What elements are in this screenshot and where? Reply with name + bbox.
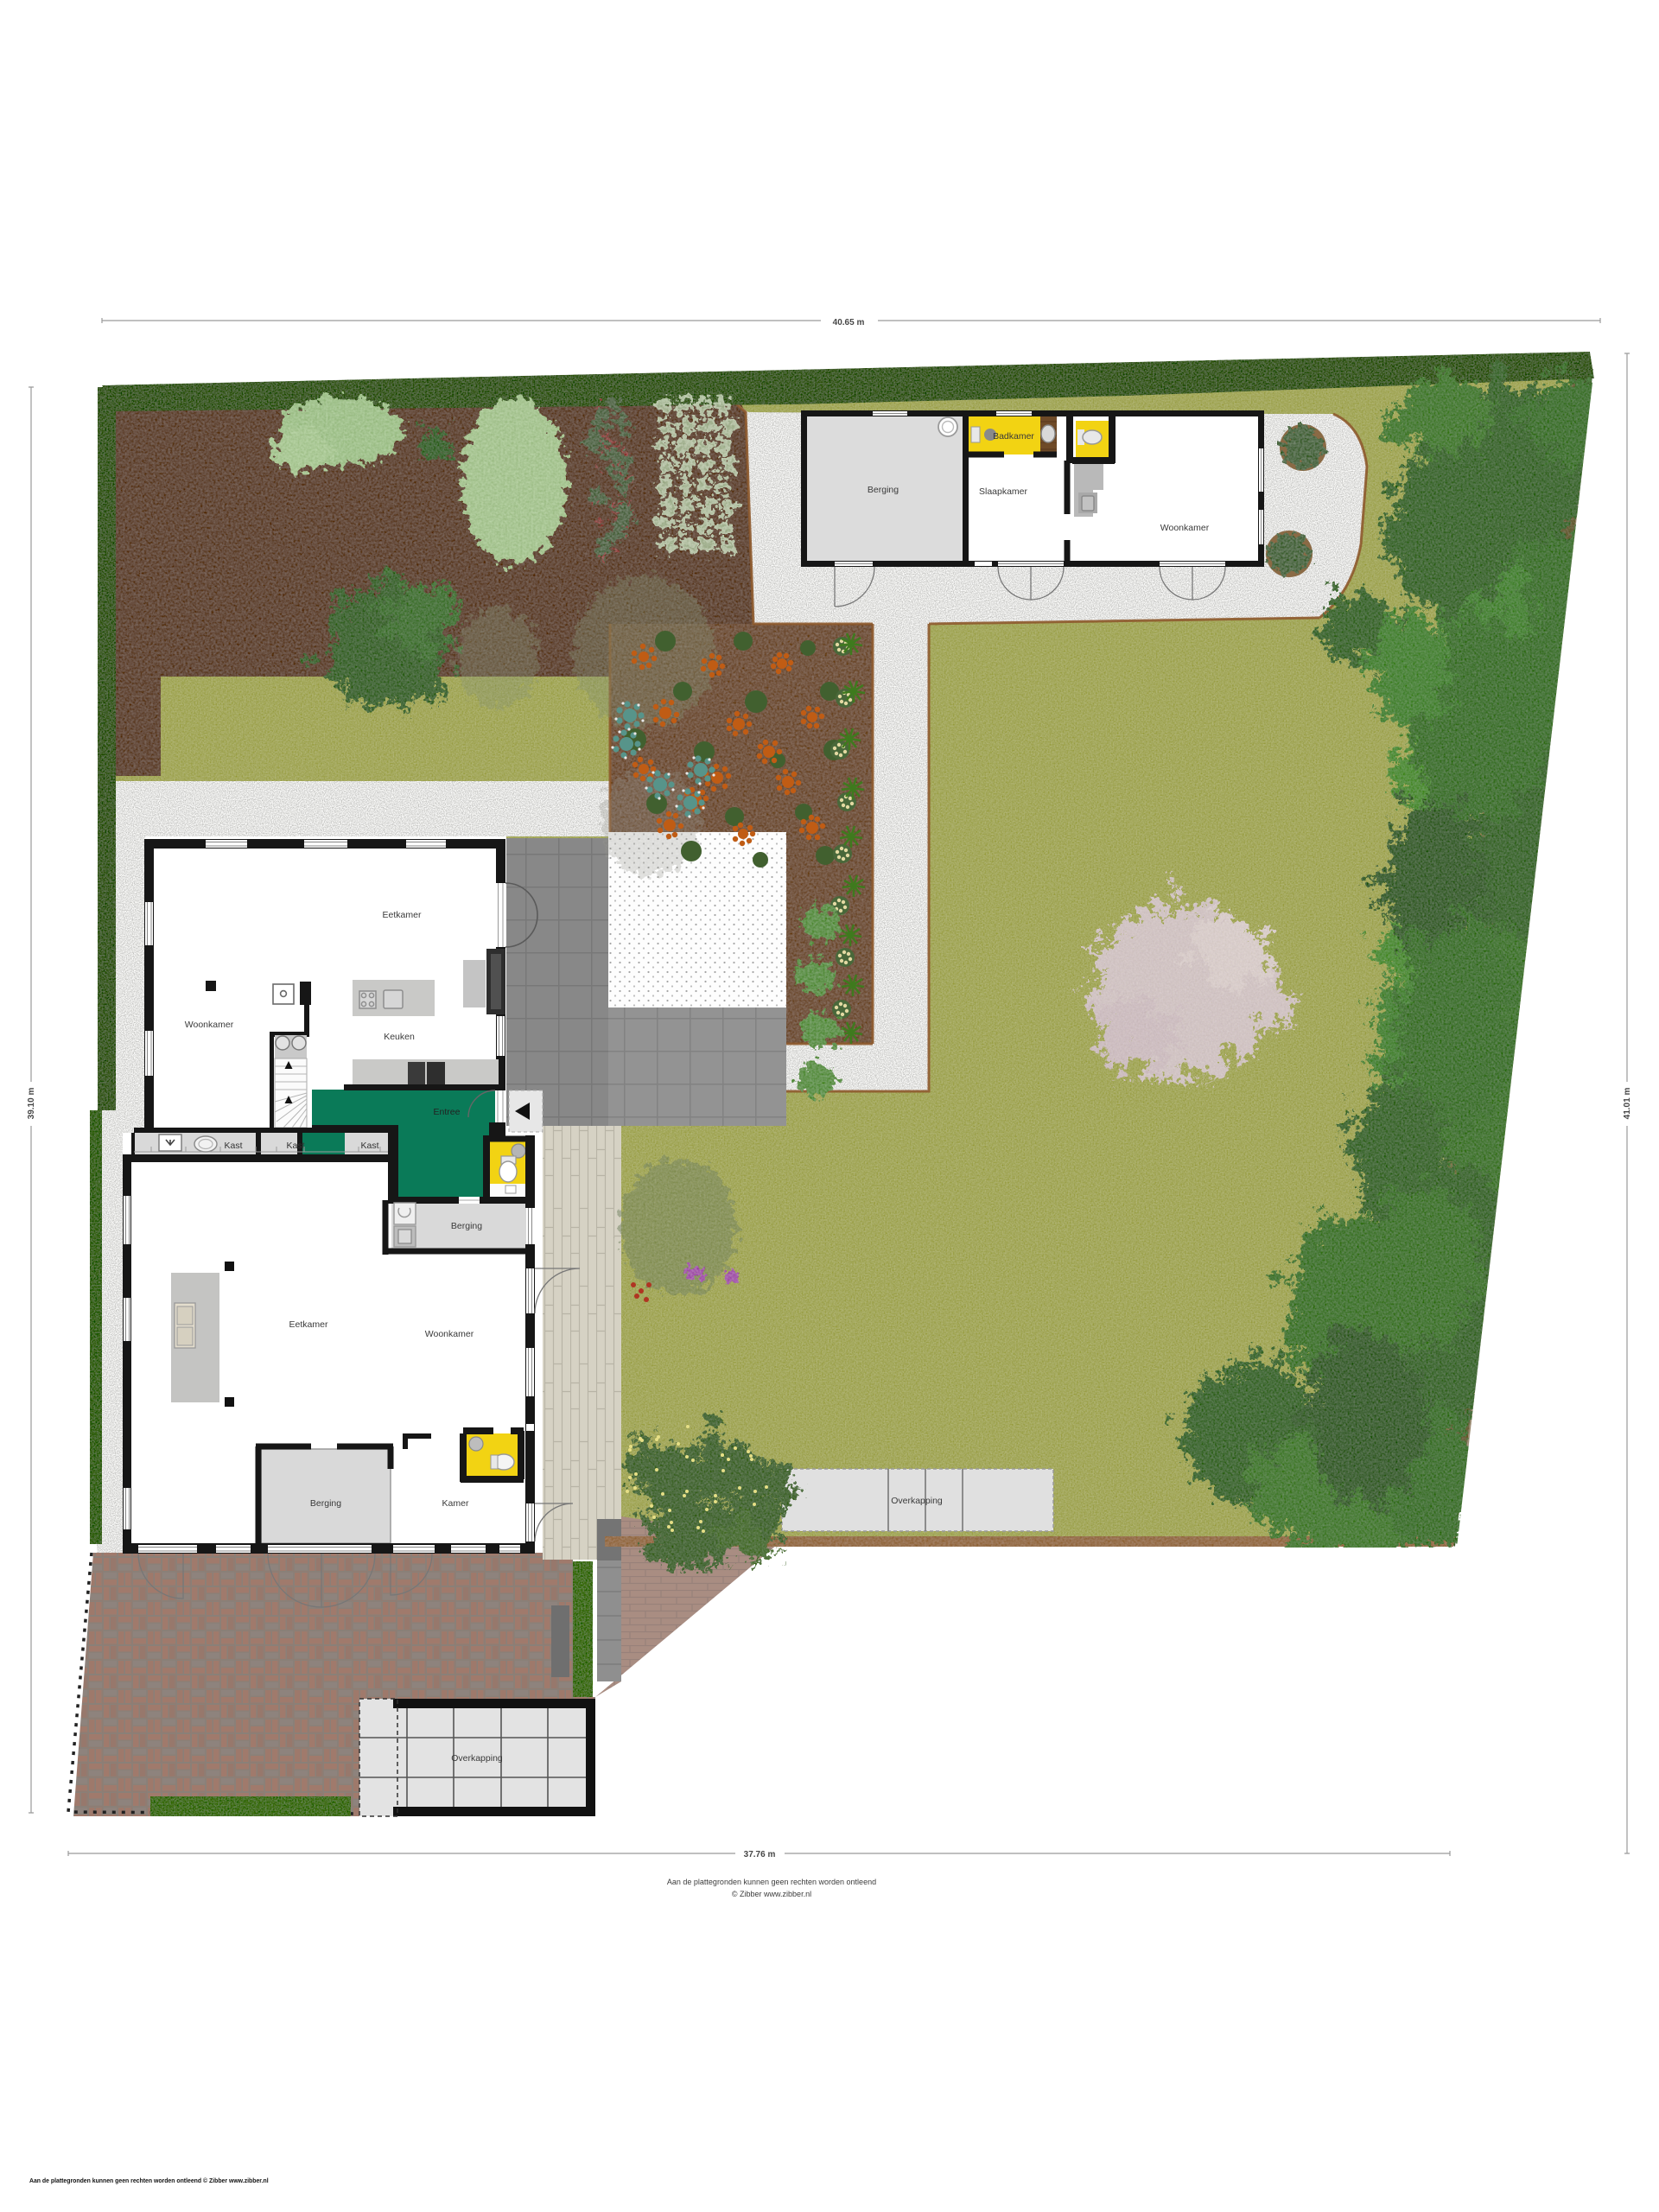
svg-text:39.10 m: 39.10 m bbox=[27, 1088, 36, 1120]
svg-text:Overkapping: Overkapping bbox=[451, 1753, 503, 1764]
svg-text:Slaapkamer: Slaapkamer bbox=[979, 486, 1028, 497]
svg-text:Woonkamer: Woonkamer bbox=[425, 1329, 474, 1339]
svg-text:Aan de plattegronden kunnen ge: Aan de plattegronden kunnen geen rechten… bbox=[667, 1878, 876, 1886]
svg-text:Berging: Berging bbox=[451, 1221, 482, 1231]
svg-text:Eetkamer: Eetkamer bbox=[383, 910, 422, 920]
svg-text:Kamer: Kamer bbox=[442, 1498, 469, 1509]
svg-text:Eetkamer: Eetkamer bbox=[289, 1319, 328, 1330]
svg-text:© Zibber www.zibber.nl: © Zibber www.zibber.nl bbox=[732, 1890, 811, 1898]
svg-text:40.65 m: 40.65 m bbox=[833, 318, 865, 327]
svg-text:Woonkamer: Woonkamer bbox=[185, 1020, 234, 1030]
svg-text:Badkamer: Badkamer bbox=[993, 431, 1034, 442]
svg-text:Woonkamer: Woonkamer bbox=[1160, 523, 1210, 533]
svg-text:Berging: Berging bbox=[868, 485, 899, 495]
svg-text:Keuken: Keuken bbox=[384, 1032, 415, 1042]
svg-text:41.01 m: 41.01 m bbox=[1623, 1088, 1632, 1120]
svg-text:Kast: Kast bbox=[286, 1141, 304, 1151]
svg-text:Berging: Berging bbox=[310, 1498, 341, 1509]
svg-text:Kast: Kast bbox=[360, 1141, 378, 1151]
svg-text:Aan de plattegronden kunnen ge: Aan de plattegronden kunnen geen rechten… bbox=[29, 2177, 269, 2184]
svg-text:Kast: Kast bbox=[224, 1141, 242, 1151]
svg-text:37.76 m: 37.76 m bbox=[744, 1850, 776, 1859]
svg-text:Overkapping: Overkapping bbox=[891, 1496, 943, 1506]
svg-text:Entree: Entree bbox=[434, 1107, 461, 1117]
